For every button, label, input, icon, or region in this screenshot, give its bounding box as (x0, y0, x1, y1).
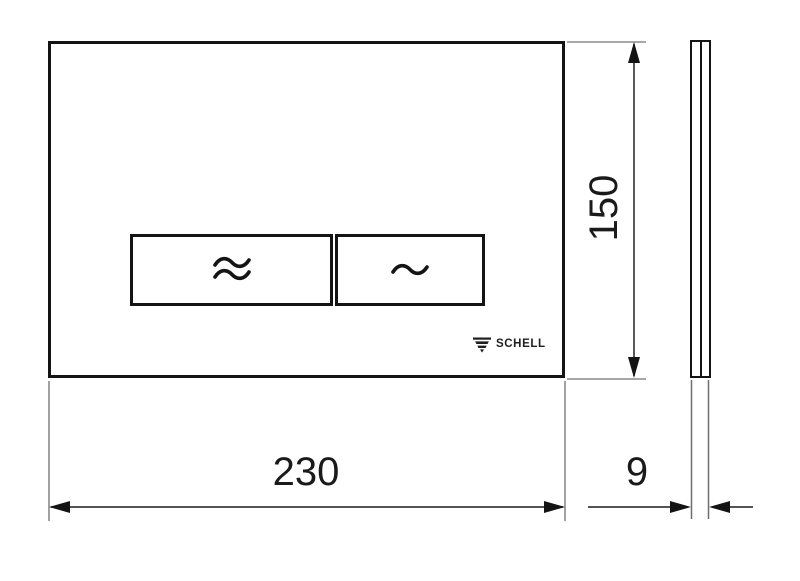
width-dimension-label: 230 (246, 450, 366, 494)
arrowhead-down-icon (628, 357, 640, 378)
depth-dimension-label: 9 (617, 450, 657, 494)
arrowhead-left-icon (49, 501, 70, 513)
dimension-lines-layer (0, 0, 800, 581)
arrowhead-up-icon (628, 42, 640, 63)
arrowhead-inward-right-icon (670, 501, 691, 513)
height-dimension-label: 150 (582, 148, 626, 268)
arrowhead-inward-left-icon (709, 501, 730, 513)
technical-drawing: SCHELL 230 150 9 (0, 0, 800, 581)
arrowhead-right-icon (544, 501, 565, 513)
